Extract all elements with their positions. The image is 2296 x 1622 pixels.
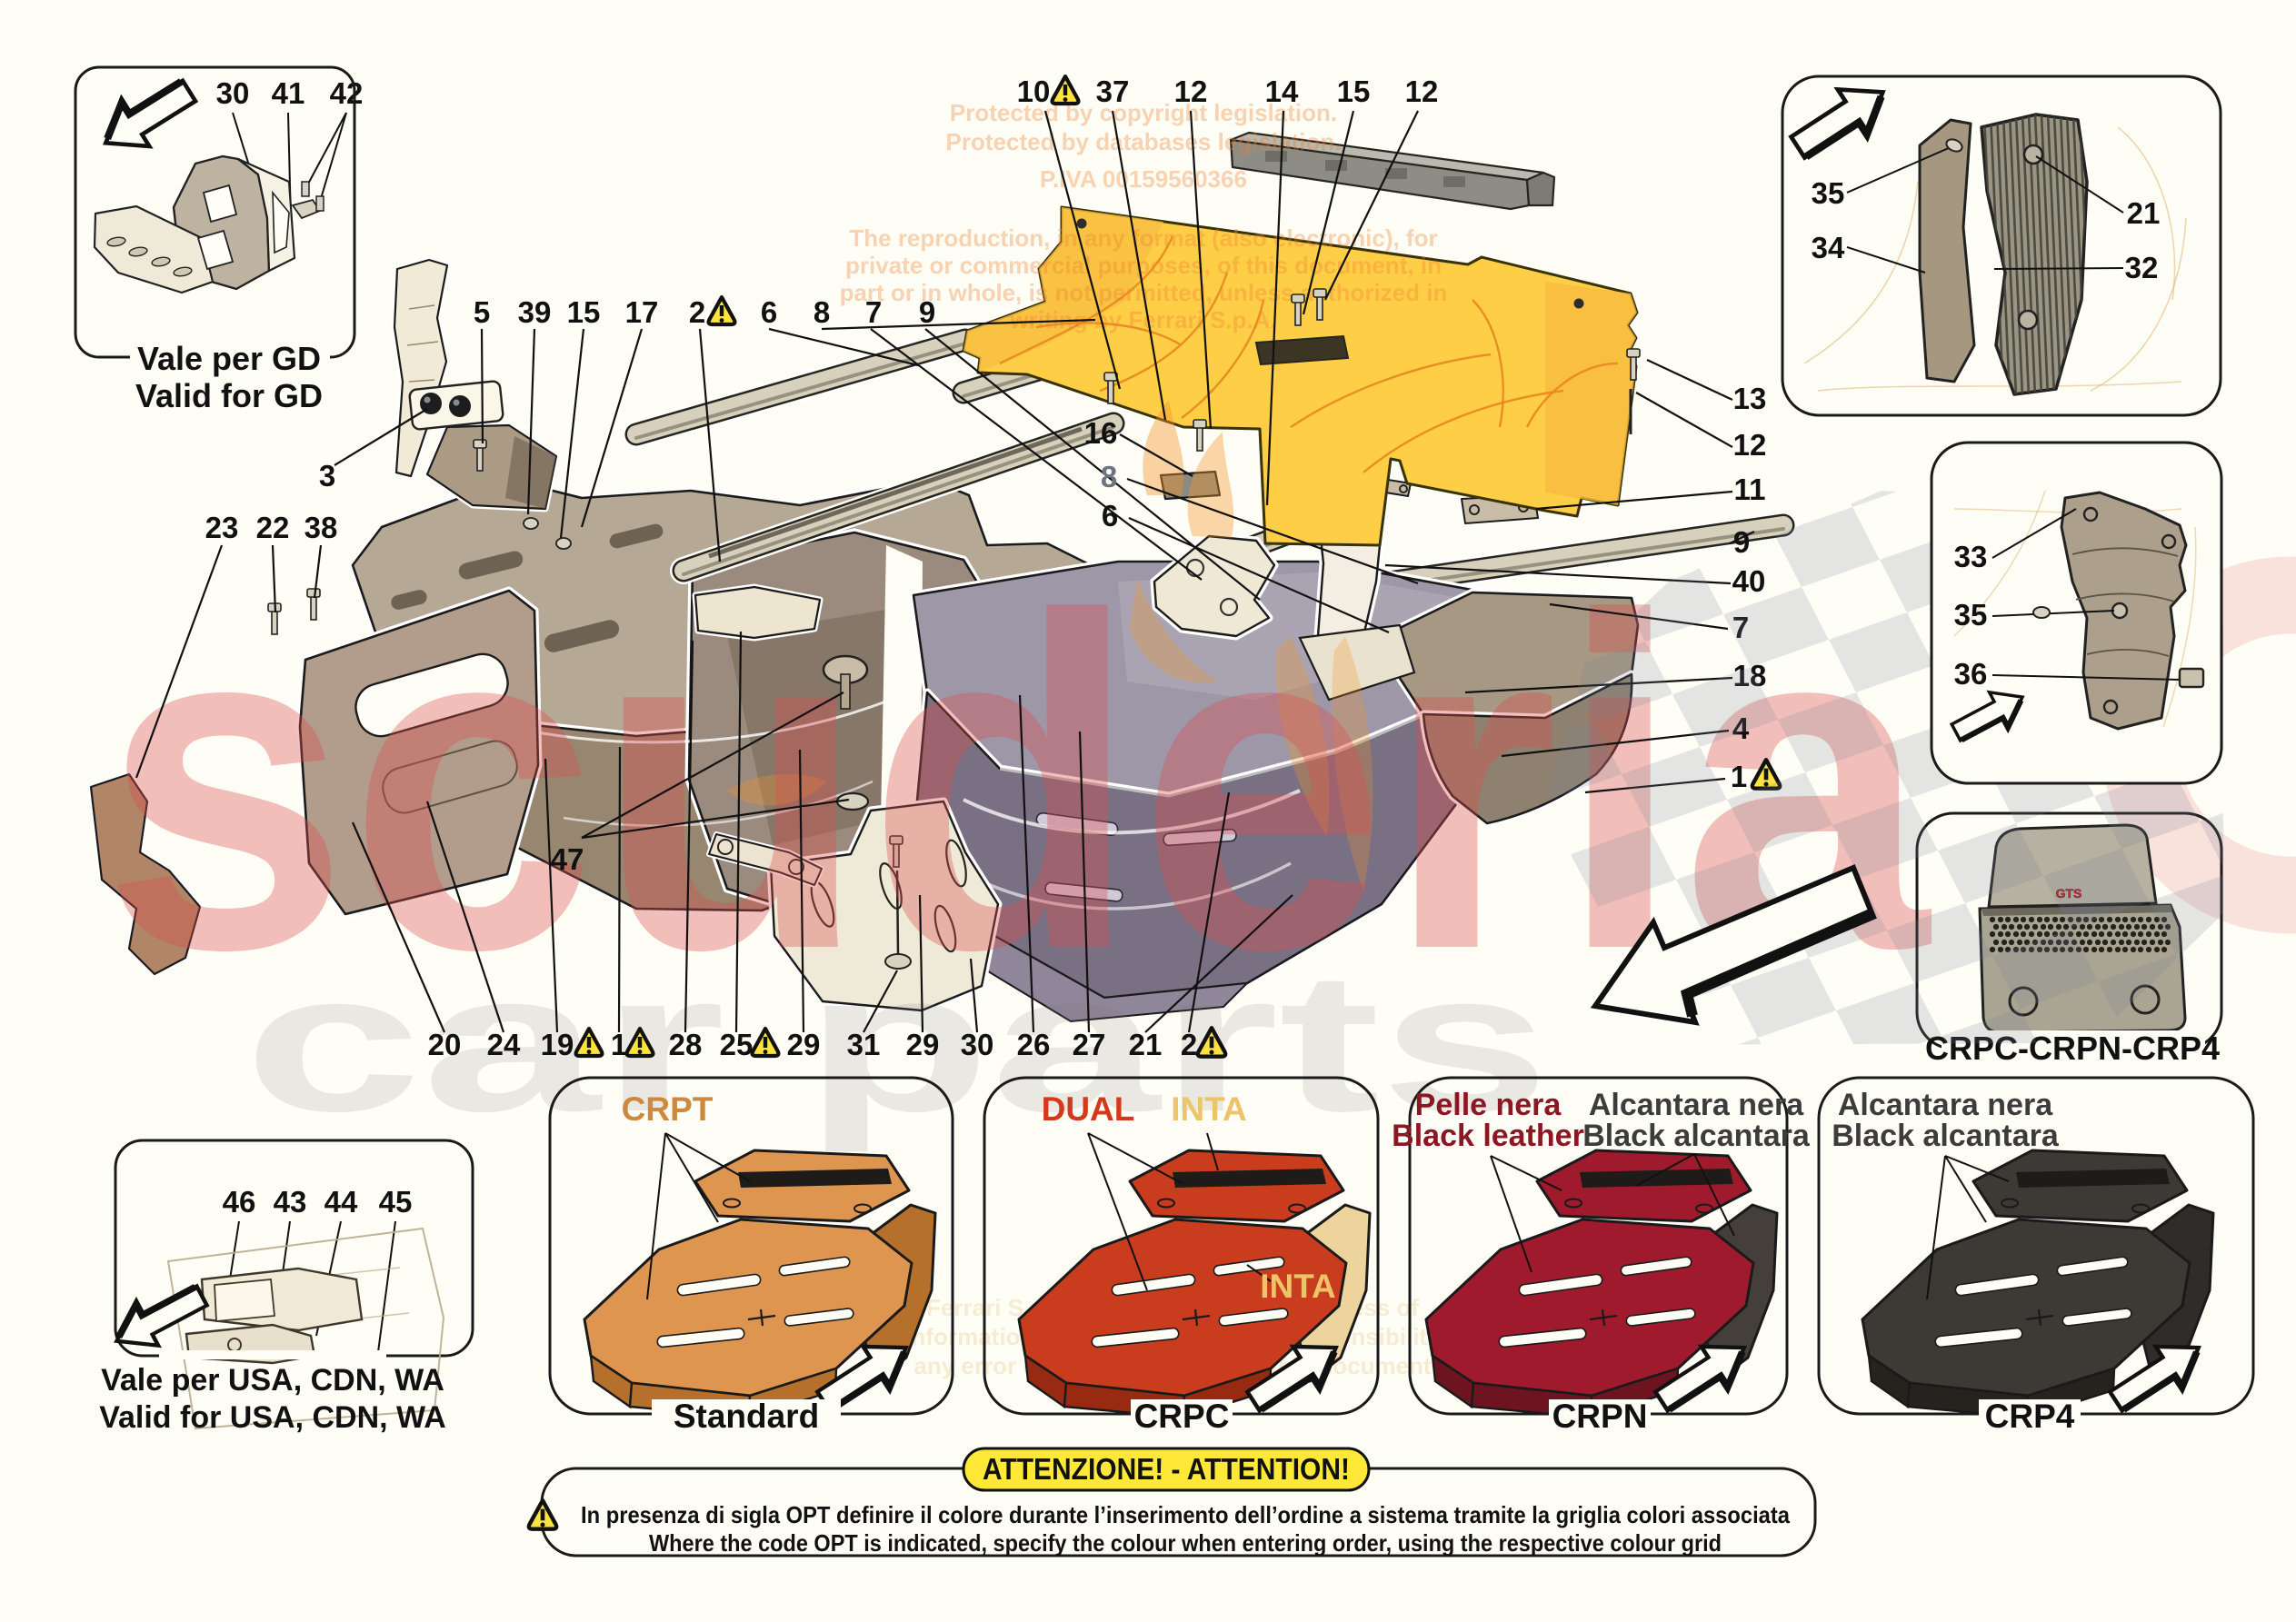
svg-text:35: 35 — [1812, 176, 1845, 210]
svg-text:15: 15 — [1337, 75, 1371, 108]
svg-text:10: 10 — [1017, 75, 1051, 108]
svg-text:6: 6 — [1102, 499, 1118, 532]
svg-text:private or commercial purposes: private or commercial purposes, of this … — [845, 252, 1442, 279]
svg-text:33: 33 — [1954, 540, 1988, 573]
svg-text:12: 12 — [1405, 75, 1439, 108]
svg-text:Standard: Standard — [674, 1398, 819, 1435]
svg-text:Alcantara nera: Alcantara nera — [1589, 1088, 1804, 1122]
svg-text:Valid for GD: Valid for GD — [135, 377, 323, 414]
svg-text:34: 34 — [1812, 231, 1845, 264]
svg-text:45: 45 — [379, 1185, 413, 1219]
svg-text:CRPT: CRPT — [622, 1090, 714, 1128]
svg-text:ATTENZIONE! - ATTENTION!: ATTENZIONE! - ATTENTION! — [983, 1452, 1350, 1486]
svg-text:Black alcantara: Black alcantara — [1832, 1119, 2060, 1153]
svg-text:32: 32 — [2125, 251, 2159, 284]
svg-text:CRPC: CRPC — [1134, 1398, 1230, 1435]
svg-text:1: 1 — [1731, 760, 1747, 793]
svg-text:41: 41 — [272, 76, 305, 110]
svg-text:Black alcantara: Black alcantara — [1582, 1119, 1811, 1153]
svg-text:Valid for USA, CDN, WA: Valid for USA, CDN, WA — [99, 1400, 446, 1435]
svg-text:7: 7 — [865, 295, 882, 329]
svg-text:DUAL: DUAL — [1042, 1090, 1135, 1128]
svg-text:12: 12 — [1174, 75, 1208, 108]
svg-text:17: 17 — [625, 295, 659, 329]
svg-text:11: 11 — [1734, 473, 1766, 506]
svg-text:6: 6 — [761, 295, 777, 329]
svg-text:44: 44 — [324, 1185, 358, 1219]
svg-text:CRP4: CRP4 — [1985, 1398, 2075, 1435]
svg-text:47: 47 — [551, 842, 584, 876]
svg-text:28: 28 — [669, 1028, 703, 1061]
svg-text:In presenza di sigla OPT defin: In presenza di sigla OPT definire il col… — [581, 1501, 1790, 1528]
svg-text:Alcantara nera: Alcantara nera — [1838, 1088, 2053, 1122]
svg-text:21: 21 — [2127, 196, 2161, 230]
svg-text:2: 2 — [689, 295, 705, 329]
svg-text:37: 37 — [1096, 75, 1130, 108]
svg-text:16: 16 — [1084, 416, 1118, 450]
svg-text:40: 40 — [1732, 564, 1766, 598]
svg-text:13: 13 — [1733, 382, 1767, 415]
svg-text:INTA: INTA — [1171, 1090, 1247, 1128]
svg-text:36: 36 — [1954, 657, 1988, 691]
svg-text:30: 30 — [216, 76, 250, 110]
svg-text:46: 46 — [223, 1185, 256, 1219]
svg-text:2: 2 — [1181, 1028, 1197, 1061]
svg-text:3: 3 — [319, 459, 335, 493]
svg-text:INTA: INTA — [1260, 1268, 1336, 1305]
svg-text:42: 42 — [330, 76, 364, 110]
svg-text:24: 24 — [487, 1028, 521, 1061]
svg-text:30: 30 — [961, 1028, 994, 1061]
svg-text:43: 43 — [274, 1185, 307, 1219]
svg-text:8: 8 — [1101, 460, 1117, 493]
svg-text:The reproduction, in any forma: The reproduction, in any format (also el… — [849, 224, 1437, 252]
svg-text:Pelle nera: Pelle nera — [1415, 1088, 1562, 1122]
svg-text:Vale per GD: Vale per GD — [137, 340, 321, 377]
svg-text:9: 9 — [1733, 525, 1750, 559]
svg-text:21: 21 — [1129, 1028, 1163, 1061]
svg-text:39: 39 — [518, 295, 552, 329]
svg-text:29: 29 — [906, 1028, 940, 1061]
svg-text:38: 38 — [304, 511, 338, 544]
svg-text:22: 22 — [256, 511, 290, 544]
svg-text:8: 8 — [814, 295, 830, 329]
svg-text:writing by Ferrari S.p.A.: writing by Ferrari S.p.A. — [1009, 306, 1276, 333]
svg-text:5: 5 — [474, 295, 490, 329]
svg-text:Where the code OPT is indicate: Where the code OPT is indicated, specify… — [649, 1529, 1722, 1557]
svg-text:26: 26 — [1017, 1028, 1051, 1061]
svg-text:CRPN: CRPN — [1552, 1398, 1648, 1435]
svg-text:Vale per USA, CDN, WA: Vale per USA, CDN, WA — [101, 1363, 444, 1398]
svg-text:23: 23 — [205, 511, 239, 544]
svg-text:20: 20 — [428, 1028, 462, 1061]
svg-text:15: 15 — [567, 295, 601, 329]
svg-text:14: 14 — [1265, 75, 1299, 108]
svg-text:19: 19 — [541, 1028, 574, 1061]
svg-text:Black leather: Black leather — [1392, 1119, 1584, 1153]
svg-text:27: 27 — [1073, 1028, 1106, 1061]
svg-text:9: 9 — [919, 295, 935, 329]
svg-text:12: 12 — [1733, 428, 1767, 462]
svg-text:31: 31 — [847, 1028, 881, 1061]
svg-text:25: 25 — [720, 1028, 754, 1061]
svg-text:P.IVA 00159560366: P.IVA 00159560366 — [1040, 165, 1247, 193]
svg-text:29: 29 — [787, 1028, 821, 1061]
svg-text:1: 1 — [611, 1028, 627, 1061]
svg-text:35: 35 — [1954, 598, 1988, 632]
